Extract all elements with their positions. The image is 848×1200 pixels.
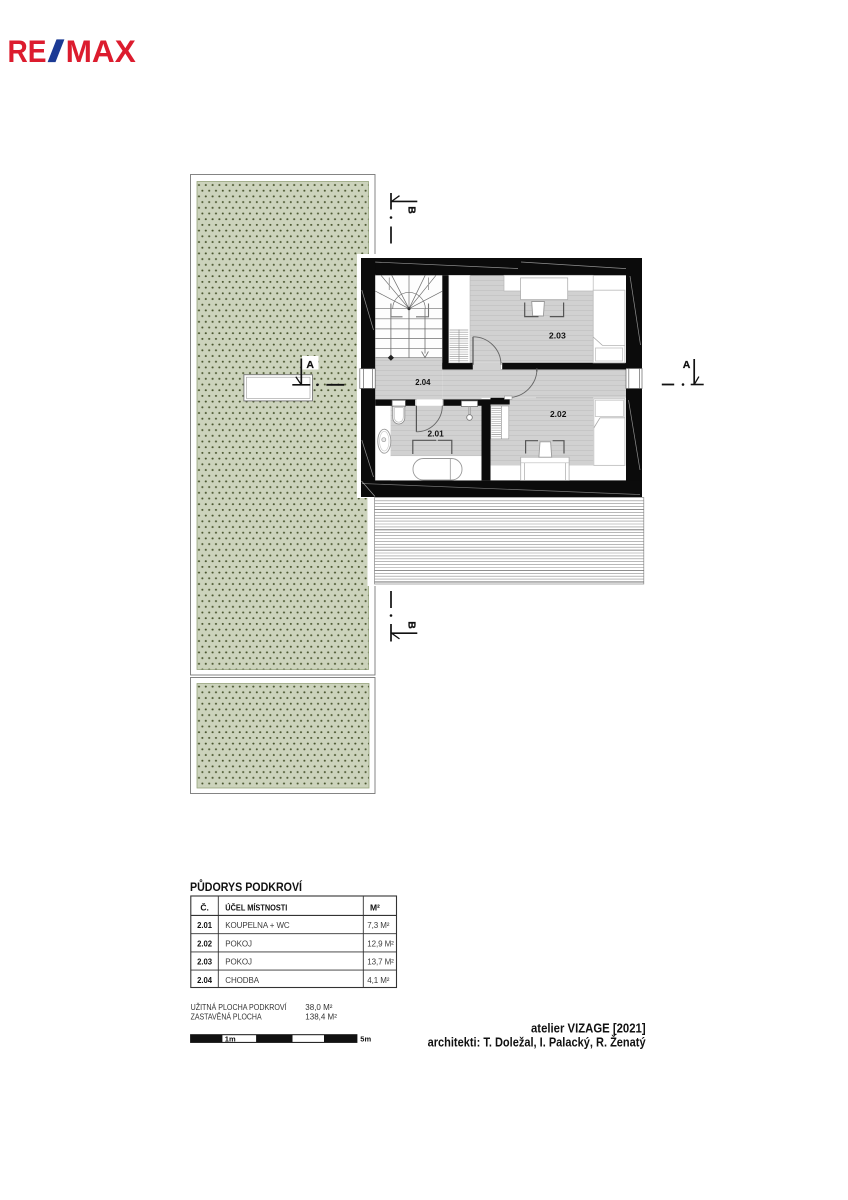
svg-text:A: A	[683, 359, 691, 371]
svg-text:CHODBA: CHODBA	[225, 976, 259, 985]
svg-text:A: A	[306, 359, 314, 371]
svg-text:2.03: 2.03	[197, 958, 213, 967]
svg-text:2.02: 2.02	[550, 409, 567, 419]
svg-text:PŮDORYS PODKROVÍ: PŮDORYS PODKROVÍ	[190, 880, 303, 894]
svg-text:atelier VIZAGE [2021]: atelier VIZAGE [2021]	[531, 1021, 646, 1035]
svg-text:M²: M²	[370, 902, 380, 912]
svg-text:12,9 M²: 12,9 M²	[367, 939, 394, 948]
svg-text:7,3 M²: 7,3 M²	[367, 921, 390, 930]
svg-text:2.01: 2.01	[197, 921, 213, 930]
svg-text:POKOJ: POKOJ	[225, 939, 252, 948]
svg-text:38,0 M²: 38,0 M²	[305, 1003, 332, 1012]
svg-text:KOUPELNA + WC: KOUPELNA + WC	[225, 921, 290, 930]
svg-text:B: B	[405, 206, 417, 214]
svg-text:RE: RE	[8, 33, 47, 69]
svg-text:5m: 5m	[360, 1034, 371, 1043]
svg-text:2.02: 2.02	[197, 939, 213, 948]
svg-text:ZASTAVĚNÁ PLOCHA: ZASTAVĚNÁ PLOCHA	[191, 1013, 263, 1022]
svg-text:2.01: 2.01	[428, 428, 444, 438]
svg-text:UŽITNÁ PLOCHA PODKROVÍ: UŽITNÁ PLOCHA PODKROVÍ	[191, 1003, 288, 1012]
svg-text:architekti: T. Doležal, I. Pal: architekti: T. Doležal, I. Palacký, R. Ž…	[428, 1035, 646, 1050]
svg-text:B: B	[405, 621, 417, 629]
svg-text:4,1 M²: 4,1 M²	[367, 976, 390, 985]
svg-text:13,7 M²: 13,7 M²	[367, 958, 394, 967]
svg-text:2.04: 2.04	[197, 976, 213, 985]
svg-text:Č.: Č.	[200, 901, 209, 912]
svg-text:2.03: 2.03	[549, 330, 566, 340]
svg-text:POKOJ: POKOJ	[225, 958, 252, 967]
svg-text:MAX: MAX	[66, 33, 136, 69]
svg-text:138,4 M²: 138,4 M²	[305, 1013, 337, 1022]
svg-text:2.04: 2.04	[415, 377, 430, 387]
svg-text:ÚČEL MÍSTNOSTI: ÚČEL MÍSTNOSTI	[225, 901, 287, 912]
svg-text:1m: 1m	[225, 1034, 236, 1043]
